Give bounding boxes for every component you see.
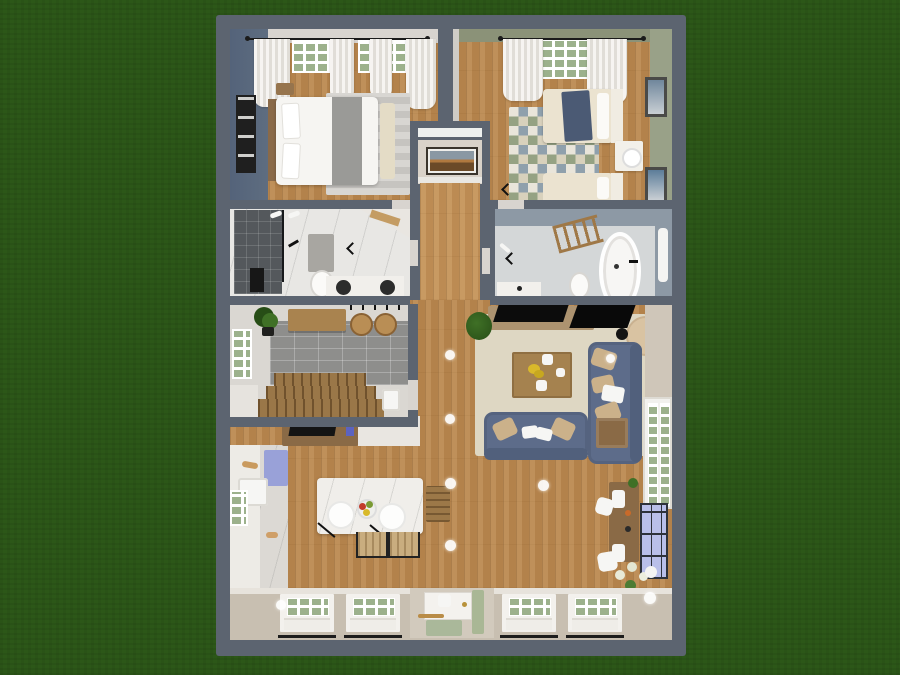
- stairs-step: [266, 386, 376, 399]
- desk[interactable]: [609, 482, 639, 562]
- yellow-flowers: [534, 370, 544, 378]
- sofa[interactable]: [484, 412, 588, 460]
- gray-mat: [308, 234, 334, 272]
- bed-bench[interactable]: [380, 103, 395, 179]
- floor-plan-scene: [0, 0, 900, 675]
- round-sink: [380, 280, 395, 295]
- desk-item: [625, 510, 631, 516]
- round-stool[interactable]: [350, 313, 373, 336]
- curtain: [406, 39, 436, 109]
- porch-light: [276, 600, 286, 610]
- dining-chair[interactable]: [388, 532, 420, 558]
- mudroom-window[interactable]: [232, 329, 252, 379]
- flower-rail: [500, 635, 558, 638]
- tv-panel[interactable]: [569, 302, 636, 328]
- bedroom-window[interactable]: [541, 39, 593, 79]
- mudroom-plant[interactable]: [252, 307, 282, 337]
- wall: [230, 200, 410, 209]
- pendant-lamp-shade: [378, 503, 406, 531]
- front-window[interactable]: [502, 594, 556, 632]
- house-outline: [216, 15, 686, 656]
- black-mat: [250, 268, 264, 292]
- front-window[interactable]: [346, 594, 400, 632]
- desk-item: [625, 526, 631, 532]
- landing: [230, 385, 258, 417]
- flower-rail: [278, 635, 336, 638]
- bath-door-opening[interactable]: [482, 248, 490, 274]
- double-bed[interactable]: [276, 97, 378, 185]
- bedroom-divider-wall: [438, 29, 451, 122]
- right-wall-band: [645, 300, 672, 397]
- shower-head: [288, 239, 299, 247]
- loveseat-back: [630, 344, 642, 462]
- tub-faucet: [629, 260, 638, 263]
- door-panes: [648, 403, 658, 505]
- coffee-table[interactable]: [512, 352, 572, 398]
- rod-finial: [245, 36, 250, 41]
- gray-throw: [332, 97, 362, 185]
- desk-plant: [628, 478, 638, 488]
- front-porch: [230, 588, 672, 640]
- curtain: [370, 39, 392, 99]
- plate: [536, 380, 547, 391]
- ceiling-light: [445, 350, 455, 360]
- tub-drain: [614, 264, 619, 269]
- door-mat: [426, 620, 462, 636]
- kitchen-window[interactable]: [230, 490, 248, 526]
- flower-rail: [344, 635, 402, 638]
- wall: [230, 296, 410, 305]
- wall-mirror: [658, 228, 668, 282]
- sink-faucet: [517, 286, 522, 291]
- front-window[interactable]: [568, 594, 622, 632]
- white-cushion: [535, 426, 553, 442]
- hallway: [410, 121, 490, 300]
- staircase[interactable]: [258, 399, 384, 417]
- ceiling-light: [445, 414, 455, 424]
- shower-glass: [282, 210, 284, 282]
- white-stool[interactable]: [438, 594, 451, 607]
- mudroom: [230, 305, 408, 417]
- twin-bed[interactable]: [543, 173, 613, 200]
- towel: [499, 243, 511, 254]
- utility-sink[interactable]: [382, 389, 400, 411]
- bathroom-main: [495, 208, 672, 296]
- bedroom-door-opening[interactable]: [498, 200, 524, 209]
- pillow: [281, 103, 301, 140]
- counter-item: [266, 532, 278, 538]
- nightstand[interactable]: [615, 141, 643, 171]
- wood-chair[interactable]: [426, 486, 450, 522]
- fruit-bowl[interactable]: [357, 499, 377, 519]
- curtain: [330, 39, 354, 101]
- french-doors[interactable]: [643, 397, 672, 509]
- flower-plant[interactable]: [615, 562, 655, 588]
- round-sink: [336, 280, 351, 295]
- rod-finial: [641, 36, 646, 41]
- nightstand[interactable]: [276, 83, 294, 95]
- mudroom-bottom-wall: [216, 417, 418, 427]
- coat-hooks[interactable]: [350, 305, 406, 310]
- flower-rail: [566, 635, 624, 638]
- towel: [288, 210, 301, 219]
- ceiling-light: [445, 478, 456, 489]
- bathtub[interactable]: [599, 232, 641, 296]
- plate: [542, 354, 553, 365]
- stairs-step: [274, 373, 366, 386]
- door-swing-mark: [505, 252, 518, 265]
- tv-flat[interactable]: [493, 304, 569, 322]
- toilet[interactable]: [569, 272, 590, 296]
- ceiling-light: [606, 354, 615, 363]
- plant-living[interactable]: [466, 312, 492, 340]
- bathroom-shower: [230, 208, 410, 296]
- pillow: [597, 177, 609, 199]
- bedroom-door-opening[interactable]: [392, 200, 410, 209]
- hall-ledge: [418, 128, 482, 137]
- bread-board: [242, 461, 259, 470]
- pillow: [491, 416, 519, 442]
- papers: [612, 490, 625, 508]
- blue-item: [346, 426, 354, 436]
- curtain: [503, 39, 543, 101]
- framed-art: [645, 167, 667, 200]
- black-vase[interactable]: [616, 328, 628, 340]
- wall-art-grid: [236, 95, 256, 173]
- bath-door-opening[interactable]: [410, 240, 418, 266]
- ceiling-light: [538, 480, 549, 491]
- porch-light: [644, 592, 656, 604]
- table-lamp: [622, 148, 642, 168]
- mudroom-bench[interactable]: [288, 309, 346, 331]
- pendant-lamp-shade: [327, 501, 355, 529]
- mudroom-door-opening[interactable]: [408, 380, 418, 410]
- dining-chair[interactable]: [356, 532, 388, 558]
- sofa-back: [484, 448, 588, 460]
- front-window[interactable]: [280, 594, 334, 632]
- door-panes: [660, 403, 670, 505]
- wood-stick: [418, 614, 444, 618]
- entry-bay: [410, 588, 494, 638]
- landscape-artwork: [428, 149, 476, 173]
- pillow: [597, 93, 609, 139]
- door-swing-mark: [346, 242, 359, 255]
- candle: [556, 368, 565, 377]
- headboard: [611, 89, 623, 143]
- side-table[interactable]: [596, 418, 628, 448]
- pillow: [549, 416, 577, 442]
- twin-bed[interactable]: [543, 89, 613, 143]
- green-runner: [472, 590, 484, 634]
- wall: [490, 296, 672, 305]
- blue-blanket: [561, 90, 592, 142]
- pillow: [281, 143, 301, 180]
- ceiling-light: [445, 540, 456, 551]
- headboard: [611, 173, 623, 200]
- round-stool[interactable]: [374, 313, 397, 336]
- door-handle: [462, 602, 467, 607]
- hallway-floor: [420, 183, 480, 300]
- framed-art: [645, 77, 667, 117]
